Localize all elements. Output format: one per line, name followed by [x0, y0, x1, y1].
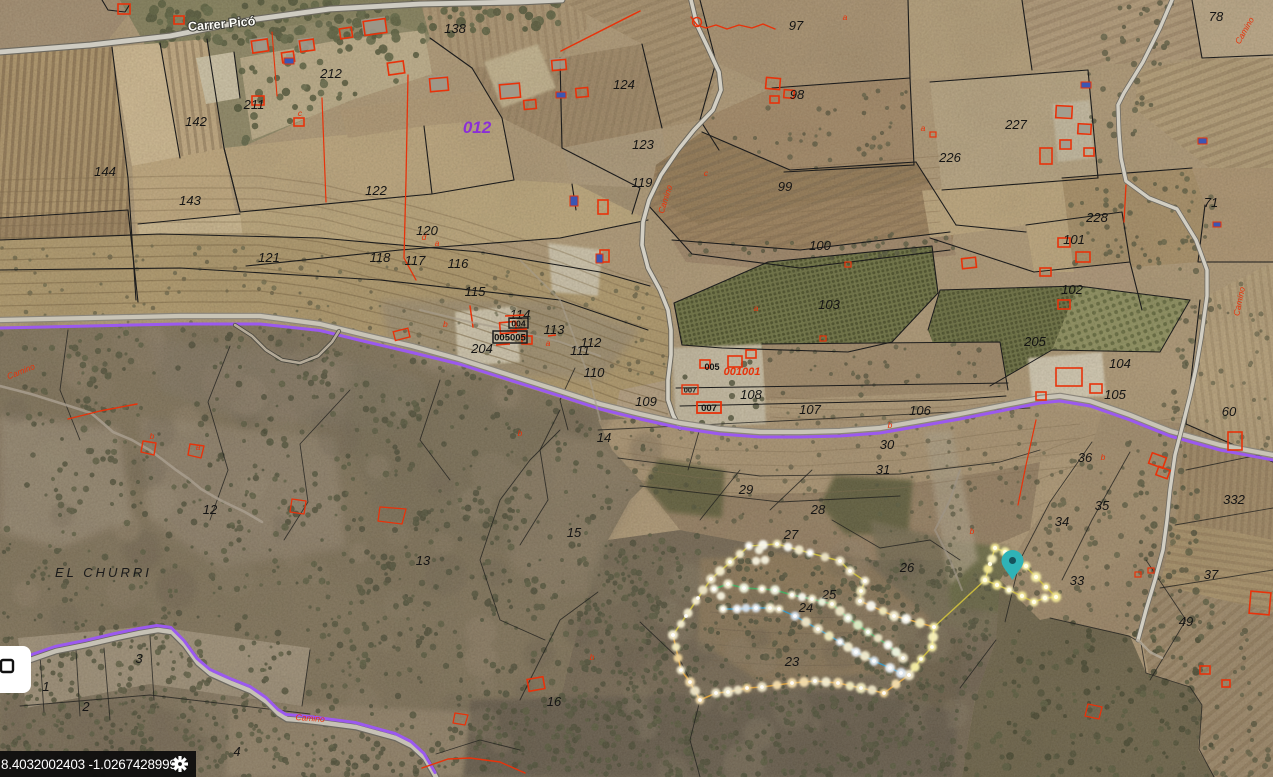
svg-text:001001: 001001 [724, 366, 761, 378]
svg-text:EL CHURRI: EL CHURRI [55, 565, 152, 580]
svg-text:107: 107 [799, 402, 821, 417]
svg-text:98: 98 [790, 87, 805, 102]
svg-text:4: 4 [233, 744, 240, 759]
svg-text:8.4032002403 -1.0267428999: 8.4032002403 -1.0267428999 [1, 757, 177, 772]
svg-text:97: 97 [789, 18, 804, 33]
svg-text:100: 100 [809, 238, 831, 253]
svg-text:b: b [150, 431, 155, 441]
svg-text:007: 007 [701, 403, 717, 414]
svg-text:108: 108 [740, 387, 762, 402]
svg-text:16: 16 [547, 694, 562, 709]
svg-text:115: 115 [465, 284, 486, 299]
svg-text:117: 117 [405, 253, 426, 268]
svg-text:Camino: Camino [295, 712, 325, 724]
svg-text:23: 23 [784, 654, 800, 669]
svg-text:99: 99 [778, 179, 792, 194]
svg-text:123: 123 [632, 137, 654, 152]
svg-text:a: a [435, 238, 440, 248]
svg-text:122: 122 [365, 183, 387, 198]
svg-text:103: 103 [818, 297, 840, 312]
svg-text:004: 004 [511, 319, 525, 329]
svg-text:204: 204 [470, 341, 493, 356]
svg-text:121: 121 [258, 250, 280, 265]
svg-text:33: 33 [1070, 573, 1085, 588]
svg-text:13: 13 [416, 553, 431, 568]
svg-text:228: 228 [1085, 210, 1108, 225]
svg-text:28: 28 [810, 502, 826, 517]
svg-text:15: 15 [567, 525, 582, 540]
svg-text:012: 012 [463, 118, 492, 137]
svg-text:34: 34 [1055, 514, 1069, 529]
svg-text:142: 142 [185, 114, 207, 129]
svg-text:109: 109 [635, 394, 657, 409]
svg-text:b: b [1101, 452, 1106, 462]
svg-text:119: 119 [632, 175, 653, 190]
svg-text:110: 110 [584, 365, 605, 380]
svg-text:111: 111 [570, 343, 590, 358]
svg-text:d: d [422, 232, 427, 242]
svg-text:30: 30 [880, 437, 895, 452]
svg-text:118: 118 [370, 250, 391, 265]
svg-text:227: 227 [1004, 117, 1027, 132]
svg-text:a: a [921, 123, 926, 133]
svg-text:35: 35 [1095, 498, 1110, 513]
svg-text:144: 144 [94, 164, 116, 179]
svg-text:120: 120 [416, 223, 438, 238]
svg-text:a: a [843, 12, 848, 22]
svg-text:332: 332 [1223, 492, 1245, 507]
svg-text:101: 101 [1063, 232, 1085, 247]
svg-text:205: 205 [1023, 334, 1046, 349]
svg-text:124: 124 [613, 77, 635, 92]
svg-text:71: 71 [1204, 195, 1218, 210]
svg-text:a: a [546, 338, 551, 348]
svg-text:b: b [970, 526, 975, 536]
svg-text:b: b [888, 420, 893, 430]
svg-text:60: 60 [1222, 404, 1237, 419]
svg-text:104: 104 [1109, 356, 1131, 371]
svg-text:2: 2 [81, 699, 90, 714]
svg-text:49: 49 [1179, 614, 1193, 629]
svg-text:105: 105 [1104, 387, 1126, 402]
svg-text:a: a [196, 442, 201, 452]
svg-text:29: 29 [738, 482, 753, 497]
svg-text:a: a [754, 303, 759, 313]
svg-text:007: 007 [684, 386, 697, 395]
svg-text:b: b [443, 319, 448, 329]
svg-text:226: 226 [938, 150, 961, 165]
svg-text:36: 36 [1078, 450, 1093, 465]
svg-text:005005: 005005 [494, 333, 526, 344]
svg-text:211: 211 [243, 97, 265, 112]
svg-text:116: 116 [448, 256, 469, 271]
svg-text:12: 12 [203, 502, 218, 517]
svg-text:31: 31 [876, 462, 890, 477]
svg-text:b: b [590, 652, 595, 662]
svg-text:b: b [518, 428, 523, 438]
svg-text:3: 3 [135, 651, 143, 666]
svg-text:138: 138 [444, 21, 466, 36]
svg-text:27: 27 [783, 527, 799, 542]
svg-text:1: 1 [42, 679, 49, 694]
svg-text:14: 14 [597, 430, 611, 445]
svg-text:26: 26 [899, 560, 915, 575]
svg-text:143: 143 [179, 193, 201, 208]
svg-text:78: 78 [1209, 9, 1224, 24]
svg-text:102: 102 [1061, 282, 1083, 297]
svg-text:005: 005 [704, 362, 719, 372]
svg-text:212: 212 [319, 66, 342, 81]
svg-text:37: 37 [1204, 567, 1219, 582]
svg-text:106: 106 [909, 403, 931, 418]
